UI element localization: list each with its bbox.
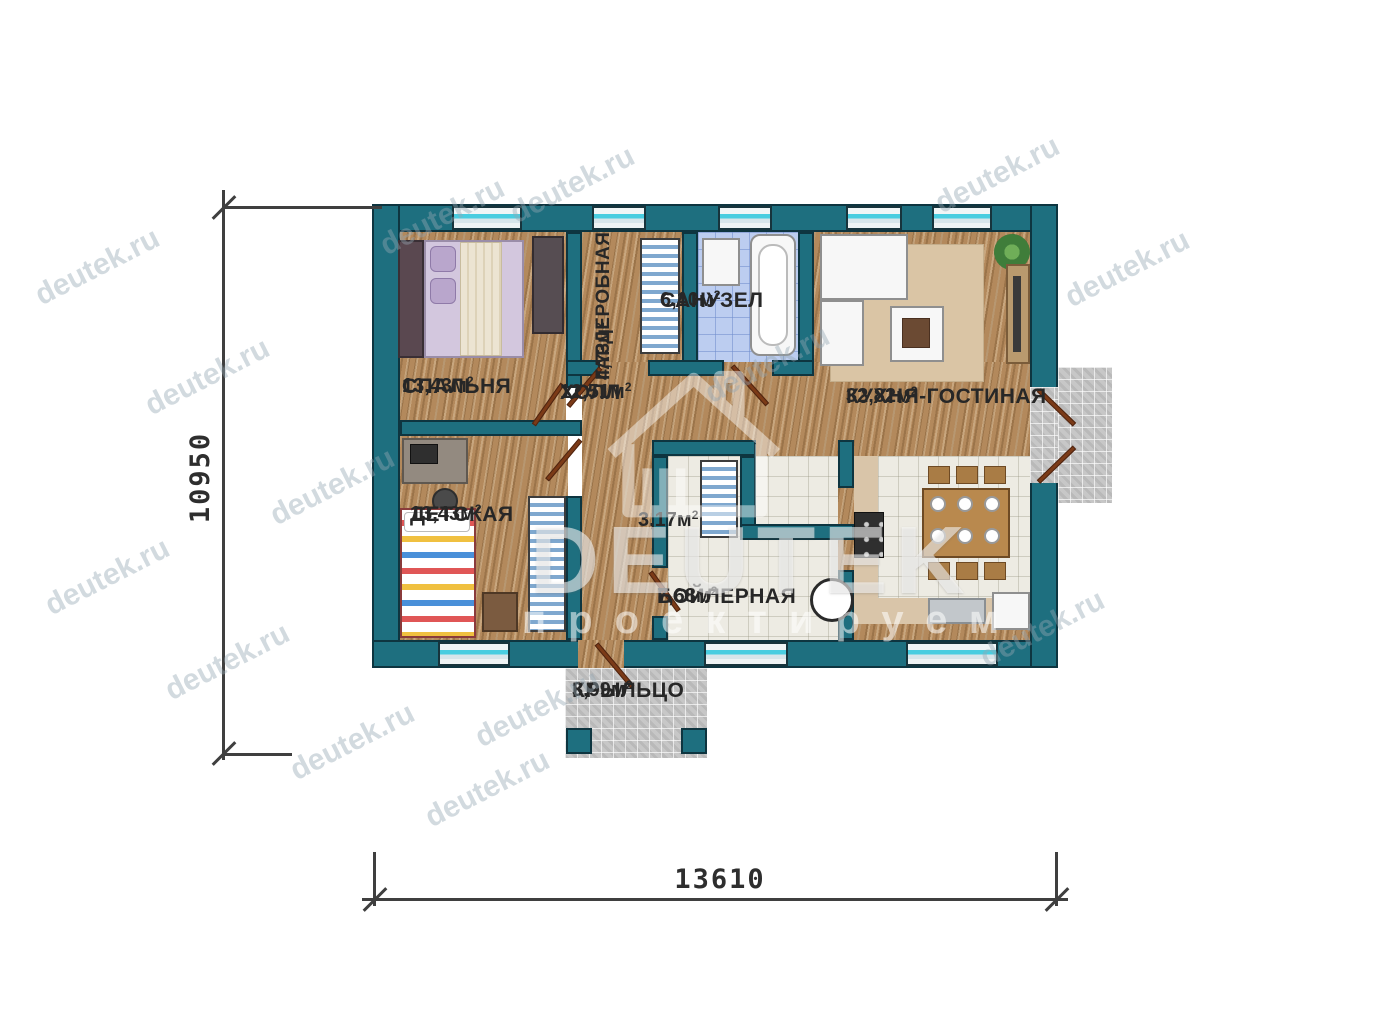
- dining-chair: [956, 466, 978, 484]
- wall-bathroom-kitchen: [798, 232, 814, 376]
- boiler-area: 7,68м2: [657, 584, 711, 608]
- dining-chair: [928, 562, 950, 580]
- watermark-site: deutek.ru: [160, 616, 296, 708]
- dim-left-ext-bottom: [222, 753, 292, 756]
- bathroom-area: 6,10м2: [660, 288, 714, 312]
- dining-chair: [956, 562, 978, 580]
- watermark-site: deutek.ru: [30, 221, 166, 313]
- window-top-kitchen-1: [846, 206, 902, 230]
- dim-bottom-line: [362, 898, 1068, 901]
- plate: [930, 496, 946, 512]
- porch-area: 3,99м2: [572, 678, 626, 702]
- fridge: [992, 592, 1030, 630]
- kitchen-living-area: 32,82м2: [846, 384, 911, 408]
- watermark-site: deutek.ru: [1060, 223, 1196, 315]
- bed-headboard: [398, 240, 424, 358]
- stove: [854, 512, 884, 558]
- wardrobe-label: ГАРДЕРОБНАЯ 4,73м2: [593, 220, 647, 380]
- dim-height-label: 10950: [185, 432, 216, 523]
- bed-blanket: [460, 242, 502, 356]
- plate: [984, 496, 1000, 512]
- floor-plan-image: СПАЛЬНЯ 13,43м2 ГАРДЕРОБНАЯ 4,73м2 САНУЗ…: [0, 0, 1400, 1015]
- children-area: 13,43м2: [410, 502, 475, 526]
- wall-children-right: [566, 496, 582, 640]
- wall-left: [372, 204, 400, 668]
- children-shelf-rack: [528, 496, 566, 632]
- plate: [957, 496, 973, 512]
- coffee-table-top: [902, 318, 930, 348]
- bathroom-sink: [702, 238, 740, 286]
- children-nightstand: [482, 592, 518, 632]
- window-bottom-children: [438, 642, 510, 666]
- deutek-house-logo-icon: [595, 362, 785, 530]
- porch-post-right: [681, 728, 707, 754]
- wall-corridor-left-b: [652, 616, 668, 640]
- bedroom-area: 13,43м2: [402, 374, 467, 398]
- sofa-main: [820, 234, 908, 300]
- dim-left-line: [222, 190, 225, 760]
- bed-pillow: [430, 246, 456, 272]
- plate: [957, 528, 973, 544]
- window-top-bathroom: [718, 206, 772, 230]
- dining-chair: [928, 466, 950, 484]
- wall-bedroom-bottom: [400, 420, 582, 436]
- tv-screen: [1013, 276, 1021, 352]
- watermark-site: deutek.ru: [140, 331, 276, 423]
- porch-post-left: [566, 728, 592, 754]
- dining-chair: [984, 466, 1006, 484]
- bed-pillow: [430, 278, 456, 304]
- dining-chair: [984, 562, 1006, 580]
- dim-left-ext-top: [222, 206, 382, 209]
- bedroom-cabinet: [532, 236, 564, 334]
- laptop: [410, 444, 438, 464]
- window-top-kitchen-2: [932, 206, 992, 230]
- plate: [984, 528, 1000, 544]
- window-top-bedroom: [452, 206, 522, 230]
- plate: [930, 528, 946, 544]
- watermark-site: deutek.ru: [420, 743, 556, 835]
- window-bottom-boiler: [704, 642, 788, 666]
- sofa-arm: [820, 300, 864, 366]
- watermark-site: deutek.ru: [285, 696, 421, 788]
- kitchen-sink: [928, 598, 986, 624]
- watermark-site: deutek.ru: [40, 531, 176, 623]
- terrace-floor: [1058, 367, 1112, 503]
- wall-kitchen-left-a: [838, 440, 854, 488]
- boiler-tank: [810, 578, 854, 622]
- dim-width-label: 13610: [640, 864, 800, 895]
- window-bottom-kitchen: [906, 642, 998, 666]
